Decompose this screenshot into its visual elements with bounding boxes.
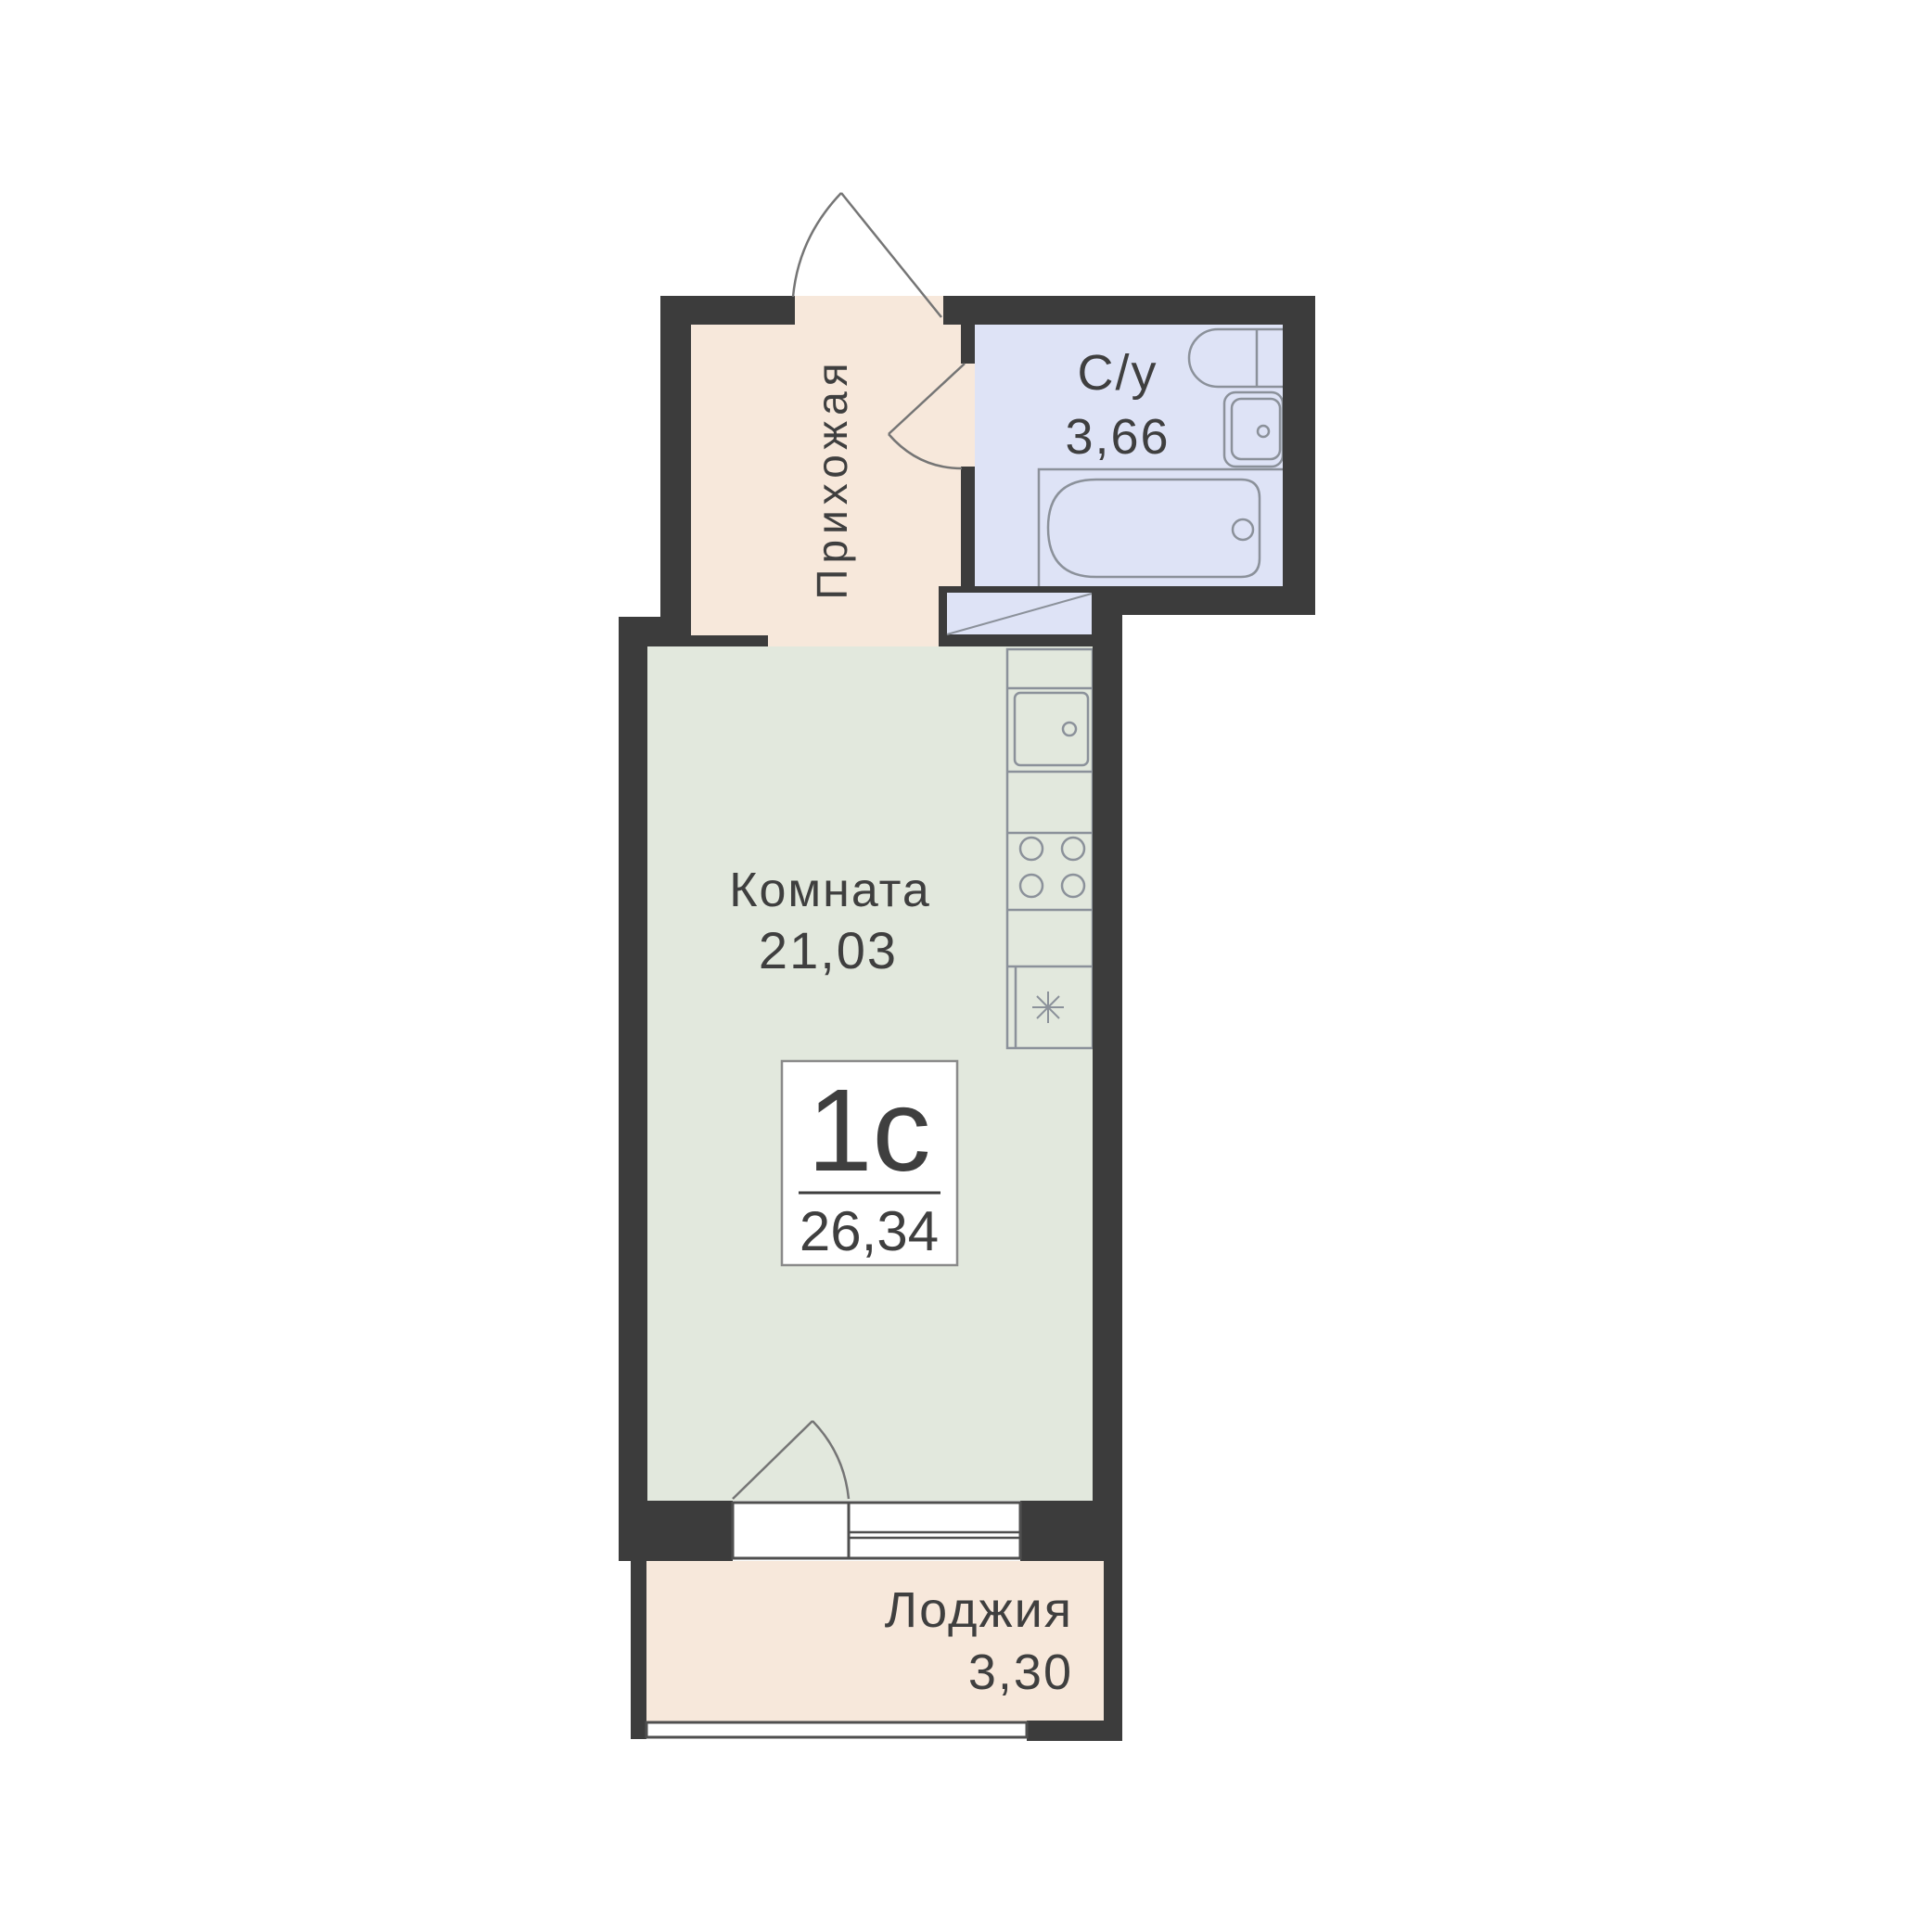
entrance-opening — [795, 296, 943, 325]
wall — [1093, 586, 1122, 1501]
wall — [660, 325, 691, 646]
wall — [1104, 1561, 1122, 1741]
living-room-area: 21,03 — [759, 921, 898, 979]
wall — [619, 635, 768, 646]
living-room-label: Комната — [729, 864, 931, 917]
unit-type-label: 1с — [807, 1065, 930, 1196]
unit-info-badge: 1с 26,34 — [782, 1061, 957, 1265]
loggia-glazing — [646, 1722, 1027, 1737]
wall — [961, 325, 975, 364]
bathroom-area: 3,66 — [1065, 409, 1170, 465]
wall — [943, 296, 1315, 325]
loggia-label: Лоджия — [885, 1582, 1073, 1638]
wall — [1027, 1721, 1122, 1741]
wall — [1093, 586, 1315, 615]
hallway-label: Прихожая — [808, 357, 856, 599]
loggia-area: 3,30 — [968, 1644, 1073, 1700]
balcony-door-opening — [733, 1503, 849, 1558]
wall — [961, 467, 975, 586]
wall — [660, 296, 795, 325]
wall — [1020, 1501, 1122, 1561]
fridge-icon — [1032, 992, 1064, 1023]
window — [849, 1503, 1020, 1558]
wall — [631, 1561, 646, 1739]
bathroom-door-opening — [961, 364, 975, 467]
floor-plan-page: Прихожая С/у 3,66 Комната 21,03 Лоджия 3… — [0, 0, 1932, 1932]
floor-plan: Прихожая С/у 3,66 Комната 21,03 Лоджия 3… — [0, 0, 1932, 1932]
bathroom-label: С/у — [1078, 345, 1158, 401]
unit-total-area: 26,34 — [800, 1200, 939, 1262]
wall — [619, 1501, 733, 1561]
wall — [619, 646, 647, 1501]
vent-shaft — [939, 586, 1093, 646]
wall — [1283, 296, 1315, 615]
